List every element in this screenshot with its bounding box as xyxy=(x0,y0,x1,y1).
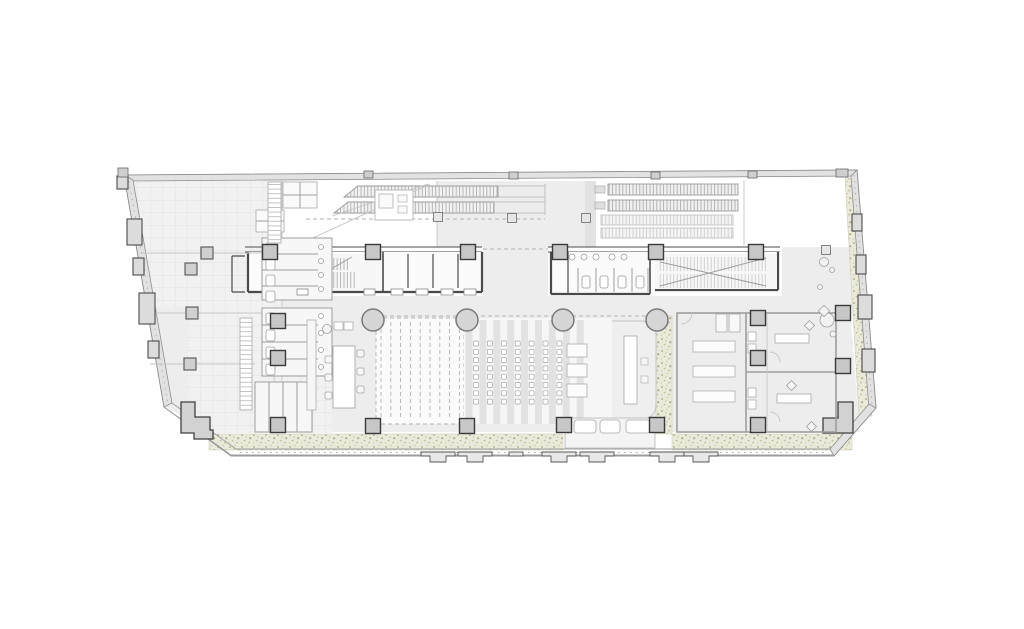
locker xyxy=(716,314,727,332)
column-square xyxy=(271,418,286,433)
seating-tier-stripe xyxy=(493,320,500,424)
escalator-connector xyxy=(595,202,605,209)
door-sill xyxy=(416,289,428,295)
wall-notch xyxy=(651,172,660,179)
pilaster xyxy=(148,341,159,358)
seat xyxy=(515,391,520,396)
wall-notch xyxy=(836,169,848,177)
escalator-connector xyxy=(595,186,605,193)
pilaster xyxy=(858,295,872,319)
column-wall xyxy=(184,358,196,370)
plant xyxy=(820,258,829,267)
column-square xyxy=(263,245,278,260)
seat xyxy=(543,391,548,396)
door-sill xyxy=(364,289,375,295)
seat xyxy=(543,399,548,404)
seat xyxy=(515,399,520,404)
toilet-fixture xyxy=(266,275,275,286)
seat xyxy=(543,374,548,379)
column-square xyxy=(751,311,766,326)
column-wall xyxy=(201,247,213,259)
seat xyxy=(474,366,479,371)
seat xyxy=(501,341,506,346)
column-mini xyxy=(582,214,591,223)
escalator-treads xyxy=(601,228,733,238)
door-sill xyxy=(391,289,403,295)
column-square xyxy=(271,314,286,329)
sink-basin xyxy=(581,254,587,260)
seat xyxy=(487,366,492,371)
seat xyxy=(557,374,562,379)
seat xyxy=(557,358,562,363)
pilaster xyxy=(133,258,144,275)
seating-tier-stripe xyxy=(466,320,473,424)
seat xyxy=(515,349,520,354)
escalator-treads xyxy=(608,200,738,211)
column-square xyxy=(271,351,286,366)
seat xyxy=(529,366,534,371)
seating-tier-stripe xyxy=(521,320,528,424)
toilet-fixture xyxy=(600,276,608,288)
fixture-knob xyxy=(319,287,324,292)
work-table xyxy=(567,384,587,397)
column-round xyxy=(362,309,384,331)
door-sill xyxy=(464,289,476,295)
seat xyxy=(501,399,506,404)
seat xyxy=(487,391,492,396)
escalator-treads xyxy=(608,184,738,195)
seat xyxy=(515,341,520,346)
shelving-rungs xyxy=(240,318,252,410)
seat xyxy=(474,358,479,363)
facade-tab xyxy=(580,452,614,462)
fixture-knob xyxy=(319,273,324,278)
seating-tier-stripe xyxy=(549,320,556,424)
shelving-rungs xyxy=(268,182,281,243)
seat xyxy=(557,383,562,388)
core-gap-corridor xyxy=(483,247,548,299)
column-square xyxy=(460,419,475,434)
column-square xyxy=(650,418,665,433)
seat xyxy=(515,358,520,363)
fixture-knob xyxy=(319,314,324,319)
chair xyxy=(357,350,364,357)
seat xyxy=(474,391,479,396)
plant xyxy=(830,331,836,337)
work-table xyxy=(567,344,587,357)
column-square xyxy=(749,245,764,260)
plant xyxy=(818,285,823,290)
stage-pad xyxy=(641,358,648,365)
seat xyxy=(501,349,506,354)
column-mini xyxy=(434,213,443,222)
column-wall xyxy=(186,307,198,319)
wall-notch xyxy=(364,171,373,178)
wall-notch xyxy=(118,168,128,177)
seat xyxy=(529,399,534,404)
seat xyxy=(529,349,534,354)
plant xyxy=(323,325,332,334)
wall-notch xyxy=(509,172,518,179)
seating-tier-stripe xyxy=(507,320,514,424)
column-wall xyxy=(185,263,197,275)
chair xyxy=(325,356,332,363)
kitchen-island xyxy=(379,194,393,208)
column-square xyxy=(366,245,381,260)
seat xyxy=(557,366,562,371)
sink-basin xyxy=(621,254,627,260)
stage-table xyxy=(624,336,637,404)
seat xyxy=(487,349,492,354)
sink-basin xyxy=(609,254,615,260)
seat xyxy=(543,383,548,388)
bath-fixture xyxy=(748,332,756,341)
seat xyxy=(529,358,534,363)
desk xyxy=(775,334,809,343)
bath-fixture xyxy=(748,388,756,397)
planting-band xyxy=(672,434,852,450)
toilet-fixture xyxy=(266,330,275,341)
seat xyxy=(474,349,479,354)
seat xyxy=(529,374,534,379)
column-square xyxy=(751,351,766,366)
stage-pad xyxy=(641,376,648,383)
ne-lounge-floor xyxy=(782,247,854,307)
planting-band xyxy=(656,316,672,434)
seat xyxy=(474,383,479,388)
column-square xyxy=(366,419,381,434)
column-mini xyxy=(822,246,831,255)
seating-tier-stripe xyxy=(479,320,486,424)
toilet-fixture xyxy=(636,276,644,288)
seat xyxy=(501,374,506,379)
escalator-treads xyxy=(601,215,733,225)
seat xyxy=(487,383,492,388)
chair xyxy=(357,386,364,393)
sink xyxy=(574,420,596,433)
fixture-knob xyxy=(319,245,324,250)
seat xyxy=(501,391,506,396)
seat xyxy=(529,383,534,388)
long-table xyxy=(693,341,735,352)
sink-basin xyxy=(569,254,575,260)
floor-plan-canvas xyxy=(0,0,1024,629)
facade-tab-small xyxy=(509,452,523,456)
sink xyxy=(626,420,650,433)
seat xyxy=(557,341,562,346)
seat xyxy=(557,391,562,396)
pilaster xyxy=(139,293,155,324)
locker xyxy=(729,314,740,332)
toilet-fixture xyxy=(266,259,275,270)
toilet-fixture xyxy=(582,276,590,288)
facade-tab xyxy=(458,452,492,462)
stair-treads xyxy=(658,274,768,288)
toilet-fixture xyxy=(618,276,626,288)
seating-tier-stripe xyxy=(535,320,542,424)
seat xyxy=(501,383,506,388)
long-table xyxy=(693,366,735,377)
column-square xyxy=(649,245,664,260)
pilaster xyxy=(852,214,862,231)
chair xyxy=(325,374,332,381)
toilet-fixture xyxy=(266,291,275,302)
seat xyxy=(487,399,492,404)
wall-notch xyxy=(748,171,757,178)
plant xyxy=(830,268,835,273)
sink xyxy=(600,420,620,433)
seat xyxy=(543,366,548,371)
door-sill xyxy=(297,289,308,295)
door-sill xyxy=(441,289,453,295)
column-square xyxy=(553,245,568,260)
pilaster xyxy=(856,255,866,274)
column-square xyxy=(836,359,851,374)
column-square xyxy=(751,418,766,433)
seat xyxy=(543,341,548,346)
seat xyxy=(557,399,562,404)
work-table xyxy=(567,364,587,377)
column-square xyxy=(461,245,476,260)
seat xyxy=(543,358,548,363)
seat xyxy=(529,341,534,346)
counter xyxy=(334,322,343,330)
column-round xyxy=(456,309,478,331)
pilaster xyxy=(127,219,142,245)
seat xyxy=(529,391,534,396)
column-square xyxy=(557,418,572,433)
cabinet xyxy=(307,320,316,410)
seat xyxy=(487,374,492,379)
column-square xyxy=(836,306,851,321)
facade-tab xyxy=(650,452,684,462)
desk xyxy=(777,394,811,403)
facade-tab xyxy=(684,452,718,462)
bath-fixture xyxy=(748,400,756,409)
seat xyxy=(474,399,479,404)
pilaster xyxy=(117,176,128,189)
seat xyxy=(543,349,548,354)
seat xyxy=(487,358,492,363)
chair xyxy=(325,392,332,399)
column-mini xyxy=(508,214,517,223)
sink-basin xyxy=(593,254,599,260)
seat xyxy=(515,383,520,388)
pilaster xyxy=(862,349,875,372)
chair xyxy=(357,368,364,375)
long-table xyxy=(693,391,735,402)
top-wall xyxy=(124,170,857,181)
seat xyxy=(557,349,562,354)
fixture-knob xyxy=(319,365,324,370)
appliance xyxy=(398,195,407,202)
column-round xyxy=(646,309,668,331)
conference-table xyxy=(333,346,355,408)
facade-tab xyxy=(542,452,576,462)
planting-band xyxy=(209,434,563,450)
appliance xyxy=(398,206,407,213)
fixture-knob xyxy=(319,259,324,264)
escalator-treads xyxy=(344,186,498,197)
fixture-knob xyxy=(319,348,324,353)
seat xyxy=(501,358,506,363)
facade-tab xyxy=(421,452,455,462)
seat xyxy=(515,366,520,371)
seat xyxy=(474,341,479,346)
seat xyxy=(501,366,506,371)
seat xyxy=(474,374,479,379)
seat xyxy=(487,341,492,346)
seat xyxy=(515,374,520,379)
counter xyxy=(344,322,353,330)
column-round xyxy=(552,309,574,331)
